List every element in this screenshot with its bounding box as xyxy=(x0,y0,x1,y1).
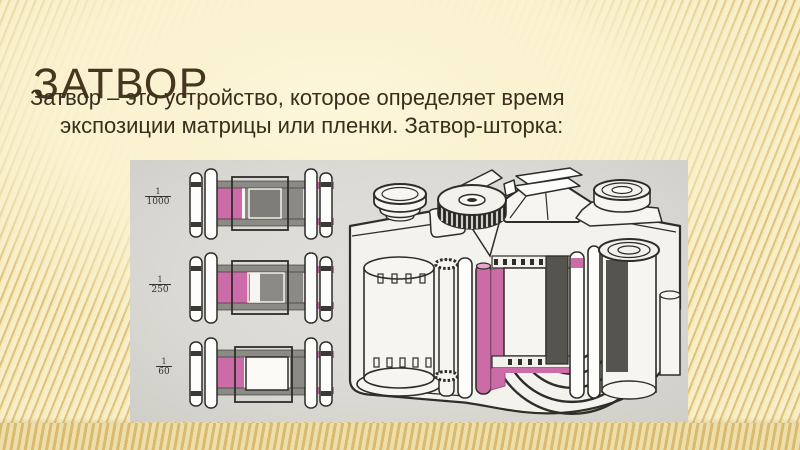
fraction-denominator: 60 xyxy=(156,366,171,377)
body-line-2: экспозиции матрицы или пленки. Затвор-шт… xyxy=(60,112,710,140)
diagram-2-250 xyxy=(190,253,334,323)
guide-roller xyxy=(588,246,600,398)
shutter-figure: 11000 1250 160 xyxy=(130,160,688,422)
take-up-spool xyxy=(599,239,659,399)
fraction-numerator: 1 xyxy=(149,276,170,284)
curtain-shutter-diagrams xyxy=(188,164,336,416)
fraction-denominator: 1000 xyxy=(145,196,172,207)
fraction-denominator: 250 xyxy=(149,284,170,295)
curtain-roller xyxy=(570,252,584,398)
film-cartridge xyxy=(357,257,441,396)
second-curtain-dark xyxy=(546,256,568,364)
fraction-numerator: 1 xyxy=(145,188,172,196)
body-text: Затвор – это устройство, которое определ… xyxy=(30,84,710,140)
shutter-speed-dial xyxy=(438,185,506,229)
spool-chamber-roller xyxy=(660,291,680,375)
shutter-speed-label-1000: 11000 xyxy=(136,188,180,207)
body-line-1: Затвор – это устройство, которое определ… xyxy=(30,84,710,112)
shutter-speed-label-60: 160 xyxy=(142,358,186,377)
first-curtain-pink xyxy=(476,263,505,394)
fraction-numerator: 1 xyxy=(156,358,171,366)
slide: ЗАТВОР Затвор – это устройство, которое … xyxy=(0,0,800,450)
camera-cutaway-illustration xyxy=(342,160,688,422)
bottom-stripe-band xyxy=(0,423,800,450)
diagram-1-1000 xyxy=(190,169,334,239)
diagram-3-60 xyxy=(190,338,334,408)
sprocket-shaft xyxy=(436,260,458,397)
guide-roller xyxy=(458,258,472,398)
shutter-speed-label-250: 1250 xyxy=(138,276,182,295)
